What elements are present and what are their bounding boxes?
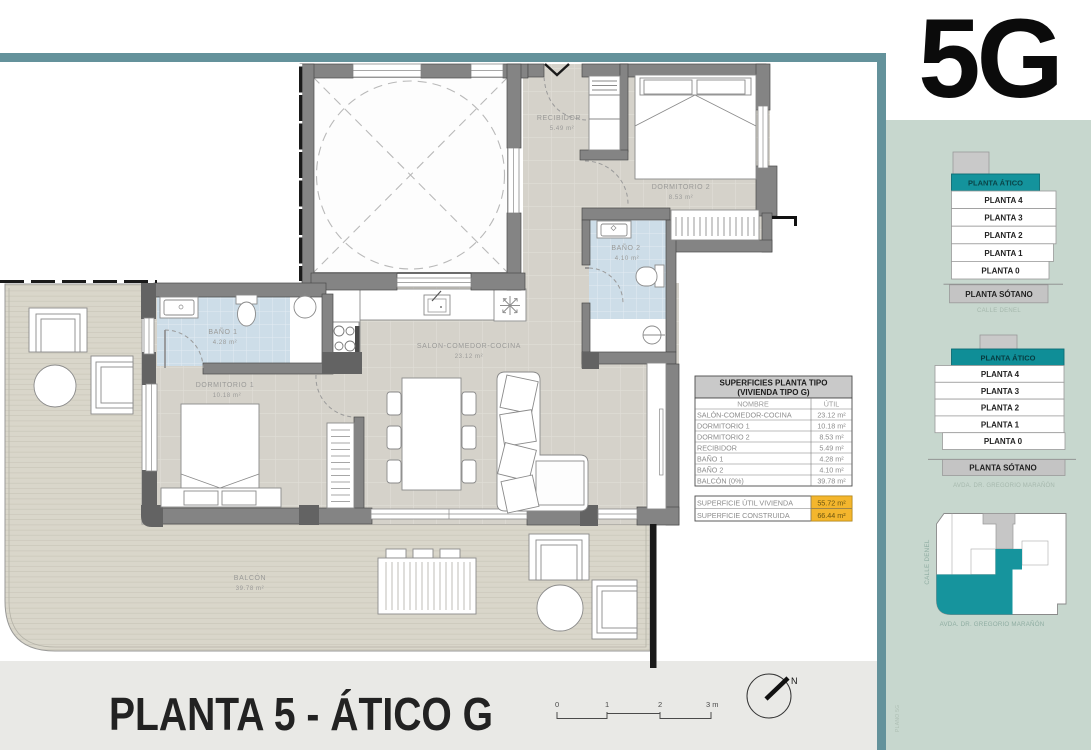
svg-text:PLANTA 3: PLANTA 3 [984,214,1023,223]
svg-text:(VIVIENDA TIPO G): (VIVIENDA TIPO G) [737,388,809,397]
svg-text:DORMITORIO 1: DORMITORIO 1 [697,422,750,431]
svg-text:BAÑO 2: BAÑO 2 [697,466,723,475]
svg-text:10.18 m²: 10.18 m² [213,393,241,399]
svg-text:NOMBRE: NOMBRE [737,400,769,409]
svg-text:DORMITORIO 2: DORMITORIO 2 [652,184,710,191]
svg-text:SALON-COMEDOR-COCINA: SALON-COMEDOR-COCINA [417,343,521,350]
svg-text:PLANTA 4: PLANTA 4 [984,196,1023,205]
svg-text:8.53 m²: 8.53 m² [669,195,694,201]
svg-text:23.12 m²: 23.12 m² [455,354,483,360]
svg-text:PLANTA 0: PLANTA 0 [981,266,1020,275]
svg-text:8.53 m²: 8.53 m² [819,433,844,442]
svg-text:4.10 m²: 4.10 m² [819,466,844,475]
svg-text:BALCÓN: BALCÓN [234,573,266,582]
svg-text:PLANTA ÁTICO: PLANTA ÁTICO [981,354,1036,363]
svg-text:0: 0 [555,700,559,709]
svg-text:SALÓN-COMEDOR-COCINA: SALÓN-COMEDOR-COCINA [697,411,792,420]
svg-text:DORMITORIO 1: DORMITORIO 1 [196,382,254,389]
svg-text:55.72 m²: 55.72 m² [817,499,846,508]
svg-text:5.49 m²: 5.49 m² [550,126,575,132]
svg-text:3 m: 3 m [706,700,719,709]
svg-text:N: N [791,676,798,686]
svg-text:CALLE DENEL: CALLE DENEL [924,539,931,585]
svg-text:PLANO 5G: PLANO 5G [895,705,901,732]
svg-text:RECIBIDOR: RECIBIDOR [537,115,581,122]
svg-text:PLANTA SÓTANO: PLANTA SÓTANO [965,290,1032,299]
svg-text:23.12 m²: 23.12 m² [817,411,846,420]
svg-text:BAÑO 2: BAÑO 2 [611,243,640,252]
svg-text:DORMITORIO 2: DORMITORIO 2 [697,433,750,442]
svg-text:PLANTA 2: PLANTA 2 [981,404,1020,413]
svg-text:PLANTA SÓTANO: PLANTA SÓTANO [969,464,1036,473]
svg-text:4.28 m²: 4.28 m² [213,340,238,346]
svg-text:PLANTA 3: PLANTA 3 [981,387,1020,396]
svg-text:SUPERFICIE CONSTRUIDA: SUPERFICIE CONSTRUIDA [697,511,790,520]
svg-text:SUPERFICIES PLANTA TIPO: SUPERFICIES PLANTA TIPO [719,379,827,388]
svg-text:PLANTA 0: PLANTA 0 [984,437,1023,446]
svg-text:ÚTIL: ÚTIL [824,400,840,409]
svg-text:PLANTA 1: PLANTA 1 [984,249,1023,258]
svg-text:39.78 m²: 39.78 m² [236,586,264,592]
svg-text:66.44 m²: 66.44 m² [817,511,846,520]
svg-text:BAÑO 1: BAÑO 1 [697,455,723,464]
svg-text:5.49 m²: 5.49 m² [819,444,844,453]
svg-text:SUPERFICIE ÚTIL VIVIENDA: SUPERFICIE ÚTIL VIVIENDA [697,499,793,508]
svg-text:BAÑO 1: BAÑO 1 [208,327,237,336]
svg-text:AVDA. DR. GREGORIO MARAÑÓN: AVDA. DR. GREGORIO MARAÑÓN [953,482,1055,489]
svg-text:PLANTA 2: PLANTA 2 [984,231,1023,240]
svg-text:RECIBIDOR: RECIBIDOR [697,444,737,453]
svg-text:PLANTA 4: PLANTA 4 [981,370,1020,379]
svg-text:5G: 5G [918,0,1059,121]
svg-text:39.78 m²: 39.78 m² [817,477,846,486]
svg-text:BALCÓN (0%): BALCÓN (0%) [697,477,744,486]
svg-text:PLANTA ÁTICO: PLANTA ÁTICO [968,179,1023,188]
svg-text:10.18 m²: 10.18 m² [817,422,846,431]
svg-text:PLANTA 5 - ÁTICO G: PLANTA 5 - ÁTICO G [109,688,493,740]
svg-text:4.28 m²: 4.28 m² [819,455,844,464]
svg-text:CALLE DENEL: CALLE DENEL [977,308,1021,314]
svg-text:1: 1 [605,700,609,709]
svg-text:PLANTA 1: PLANTA 1 [981,420,1020,429]
svg-text:2: 2 [658,700,662,709]
svg-text:AVDA. DR. GREGORIO MARAÑÓN: AVDA. DR. GREGORIO MARAÑÓN [940,621,1045,628]
svg-text:4.10 m²: 4.10 m² [615,256,640,262]
